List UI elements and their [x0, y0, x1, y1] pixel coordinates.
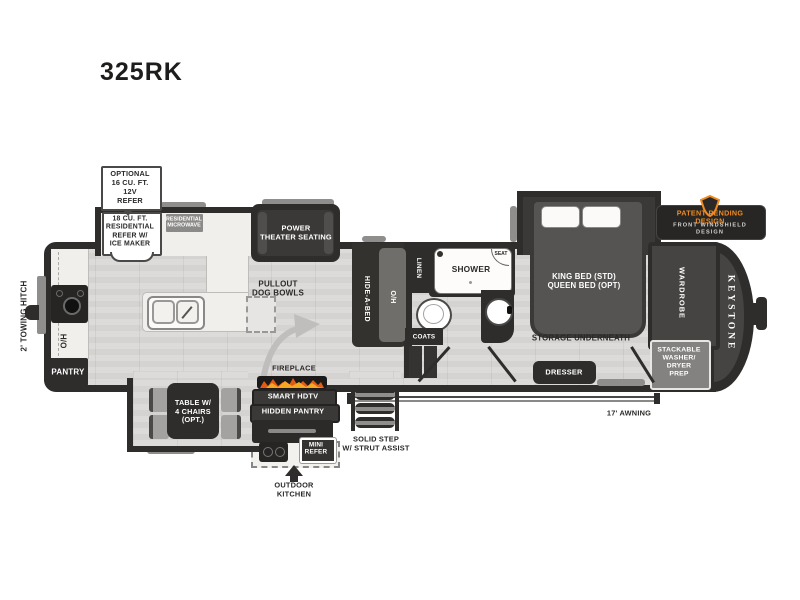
- awning-cap-right: [654, 393, 660, 404]
- dog-bowls-label: PULLOUT DOG BOWLS: [252, 280, 304, 299]
- step-1: [355, 389, 395, 400]
- table-label: TABLE W/ 4 CHAIRS (OPT.): [175, 399, 211, 425]
- bed-label: KING BED (STD) QUEEN BED (OPT): [548, 272, 621, 290]
- keystone-label: KEYSTONE: [724, 275, 735, 352]
- outdoor-kitchen-door-handle: [268, 429, 316, 433]
- step-2: [355, 403, 395, 414]
- outdoor-burner-1: [263, 447, 273, 457]
- refrigerator-label: 18 CU. FT. RESIDENTIAL REFER W/ ICE MAKE…: [106, 215, 154, 248]
- fireplace-label: FIREPLACE: [272, 365, 316, 374]
- toilet-seat: [423, 304, 444, 324]
- pantry-label: PANTRY: [51, 367, 84, 376]
- hideabed-oh-label: O/H: [388, 290, 396, 303]
- chair-1: [149, 388, 169, 412]
- wardrobe-label: WARDROBE: [677, 267, 686, 319]
- chair-2: [149, 415, 169, 439]
- entry-door-opening: [349, 371, 401, 378]
- dresser-label: DRESSER: [545, 369, 582, 378]
- hideabed-rail: [362, 236, 386, 242]
- bath-sink-faucet: [507, 306, 512, 314]
- fireplace-flames: [260, 377, 324, 388]
- left-overhead-label: O/H: [59, 334, 68, 349]
- floorplan-canvas: 325RK 2' TOWING HITCH O/H PANTRY OPTIONA…: [0, 0, 800, 600]
- page-title: 325RK: [100, 58, 183, 87]
- towing-hitch-label: 2' TOWING HITCH: [19, 281, 28, 352]
- smart-hdtv-label: SMART HDTV: [268, 393, 318, 402]
- outdoor-kitchen-label: OUTDOOR KITCHEN: [274, 481, 313, 498]
- optional-refer-label: OPTIONAL 16 CU. FT. 12V REFER: [110, 169, 149, 205]
- shower-seat-label: SEAT: [495, 252, 508, 258]
- mini-refer-label: MINI REFER: [305, 442, 328, 455]
- shower-drain: [469, 281, 472, 284]
- microwave-label: RESIDENTIAL MICROWAVE: [166, 217, 202, 230]
- table-slide-opening: [133, 371, 248, 378]
- range-burner-small: [56, 290, 63, 297]
- pillow-left: [541, 206, 580, 228]
- chair-3: [221, 388, 241, 412]
- range-burner-large: [63, 297, 81, 315]
- coats-label: COATS: [413, 333, 436, 340]
- patent-badge-line2: FRONT WINDSHIELD DESIGN: [665, 222, 755, 235]
- refrigerator-doors: [110, 252, 154, 262]
- outdoor-burner-2: [275, 447, 285, 457]
- chair-4: [221, 415, 241, 439]
- coats-lower-left: [409, 346, 422, 378]
- storage-underneath-label: STORAGE UNDERNEATH: [532, 333, 630, 342]
- bedroom-slide-rail-bottom: [597, 379, 645, 386]
- solid-step-label: SOLID STEP W/ STRUT ASSIST: [342, 435, 409, 452]
- shower-label: SHOWER: [452, 265, 491, 275]
- kingpin-foot: [756, 297, 767, 330]
- linen-label: LINEN: [414, 258, 422, 279]
- showerhead-icon: [437, 251, 443, 257]
- hidden-pantry-label: HIDDEN PANTRY: [262, 408, 325, 417]
- step-rail-right: [395, 387, 399, 431]
- step-3: [355, 417, 395, 428]
- sink-basin-left: [152, 300, 175, 324]
- washer-dryer-label: STACKABLE WASHER/ DRYER PREP: [657, 347, 700, 380]
- hideabed-label: HIDE-A-BED: [362, 276, 370, 322]
- pillow-right: [582, 206, 621, 228]
- theater-label: POWER THEATER SEATING: [260, 224, 332, 241]
- awning-label: 17' AWNING: [607, 410, 651, 419]
- bed-slide-rail-left: [510, 206, 517, 242]
- range-burner-small2: [77, 290, 84, 297]
